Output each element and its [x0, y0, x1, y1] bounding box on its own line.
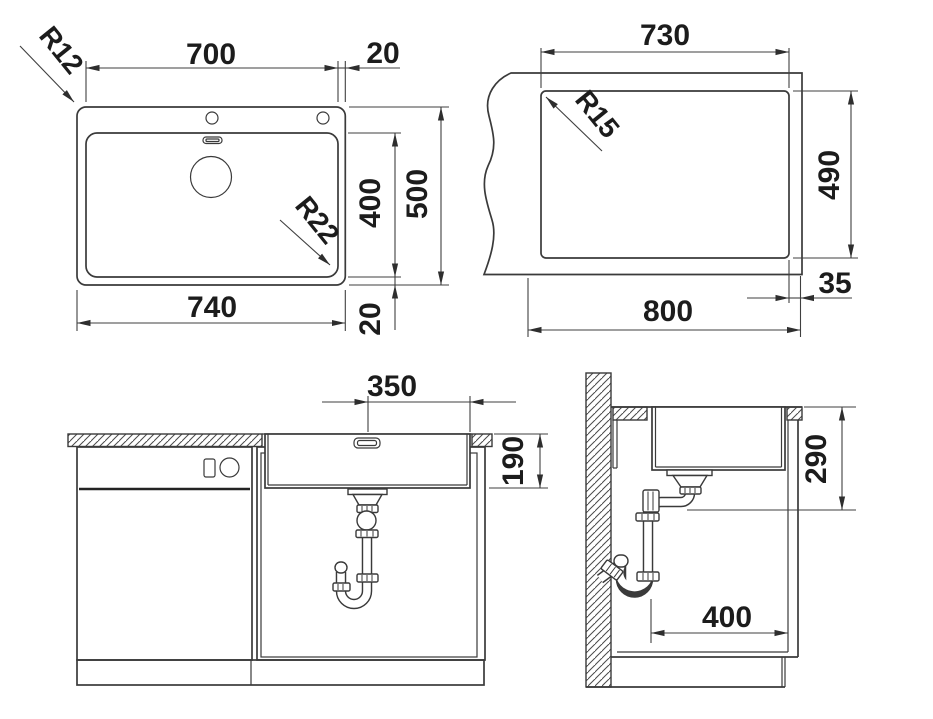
- side-siphon: [600, 470, 712, 593]
- counter-section-front: [787, 407, 802, 420]
- side-bowl: [652, 407, 785, 470]
- cutout-view: 730 490 35 800 R15: [484, 19, 858, 337]
- dim-plan-bowl-width: 700: [186, 38, 236, 71]
- dishwasher-cabinet: [77, 447, 252, 660]
- ball-joint: [357, 511, 376, 530]
- dishwasher-knob-icon: [220, 458, 239, 477]
- dishwasher-display-icon: [204, 459, 215, 477]
- dim-plan-overall-width: 740: [187, 291, 237, 324]
- dim-edge-distance: 35: [818, 267, 851, 300]
- plan-view: 700 20 400 500 20 740 R12 R22: [20, 20, 449, 335]
- sink-dimension-drawing: 700 20 400 500 20 740 R12 R22: [0, 0, 933, 719]
- drain-flange-side: [667, 470, 712, 476]
- countertop-section-right: [472, 434, 492, 447]
- dim-plan-right-rim: 20: [366, 37, 399, 70]
- plinth: [77, 660, 484, 685]
- side-view: 290 400: [586, 373, 856, 687]
- wall-section: [586, 373, 611, 687]
- dim-cabinet-width: 800: [643, 295, 693, 328]
- trap-cap: [335, 562, 347, 573]
- dim-plan-bowl-depth: 400: [354, 178, 387, 228]
- dim-plan-overall-depth: 500: [401, 169, 434, 219]
- drain-cup-front: [353, 495, 382, 506]
- dim-plan-bottom-rim: 20: [354, 302, 387, 335]
- front-siphon: [333, 489, 387, 604]
- dim-drain-offset: 350: [367, 370, 417, 403]
- dim-front-bowl-depth: 190: [497, 436, 530, 486]
- dim-base-clearance: 400: [702, 601, 752, 634]
- drain-cup-side: [673, 476, 707, 488]
- front-bowl: [265, 434, 470, 488]
- front-view: 350 190: [68, 370, 548, 685]
- countertop-section-left: [68, 434, 262, 447]
- label-radius-outer: R12: [33, 20, 89, 79]
- technical-drawing-page: 700 20 400 500 20 740 R12 R22: [0, 0, 933, 719]
- counter-section-back: [613, 407, 647, 420]
- bowl-section: [265, 434, 470, 488]
- cutout-opening: [541, 91, 789, 258]
- elbow-coupler: [643, 490, 659, 512]
- trap-cap-side: [614, 555, 628, 567]
- dim-mounting-depth: 290: [800, 434, 833, 484]
- countertop-outline: [484, 73, 802, 275]
- bowl-section-side: [652, 407, 785, 470]
- drain-flange-front: [348, 489, 387, 495]
- dim-cutout-depth: 490: [813, 150, 846, 200]
- dim-cutout-width: 730: [640, 19, 690, 52]
